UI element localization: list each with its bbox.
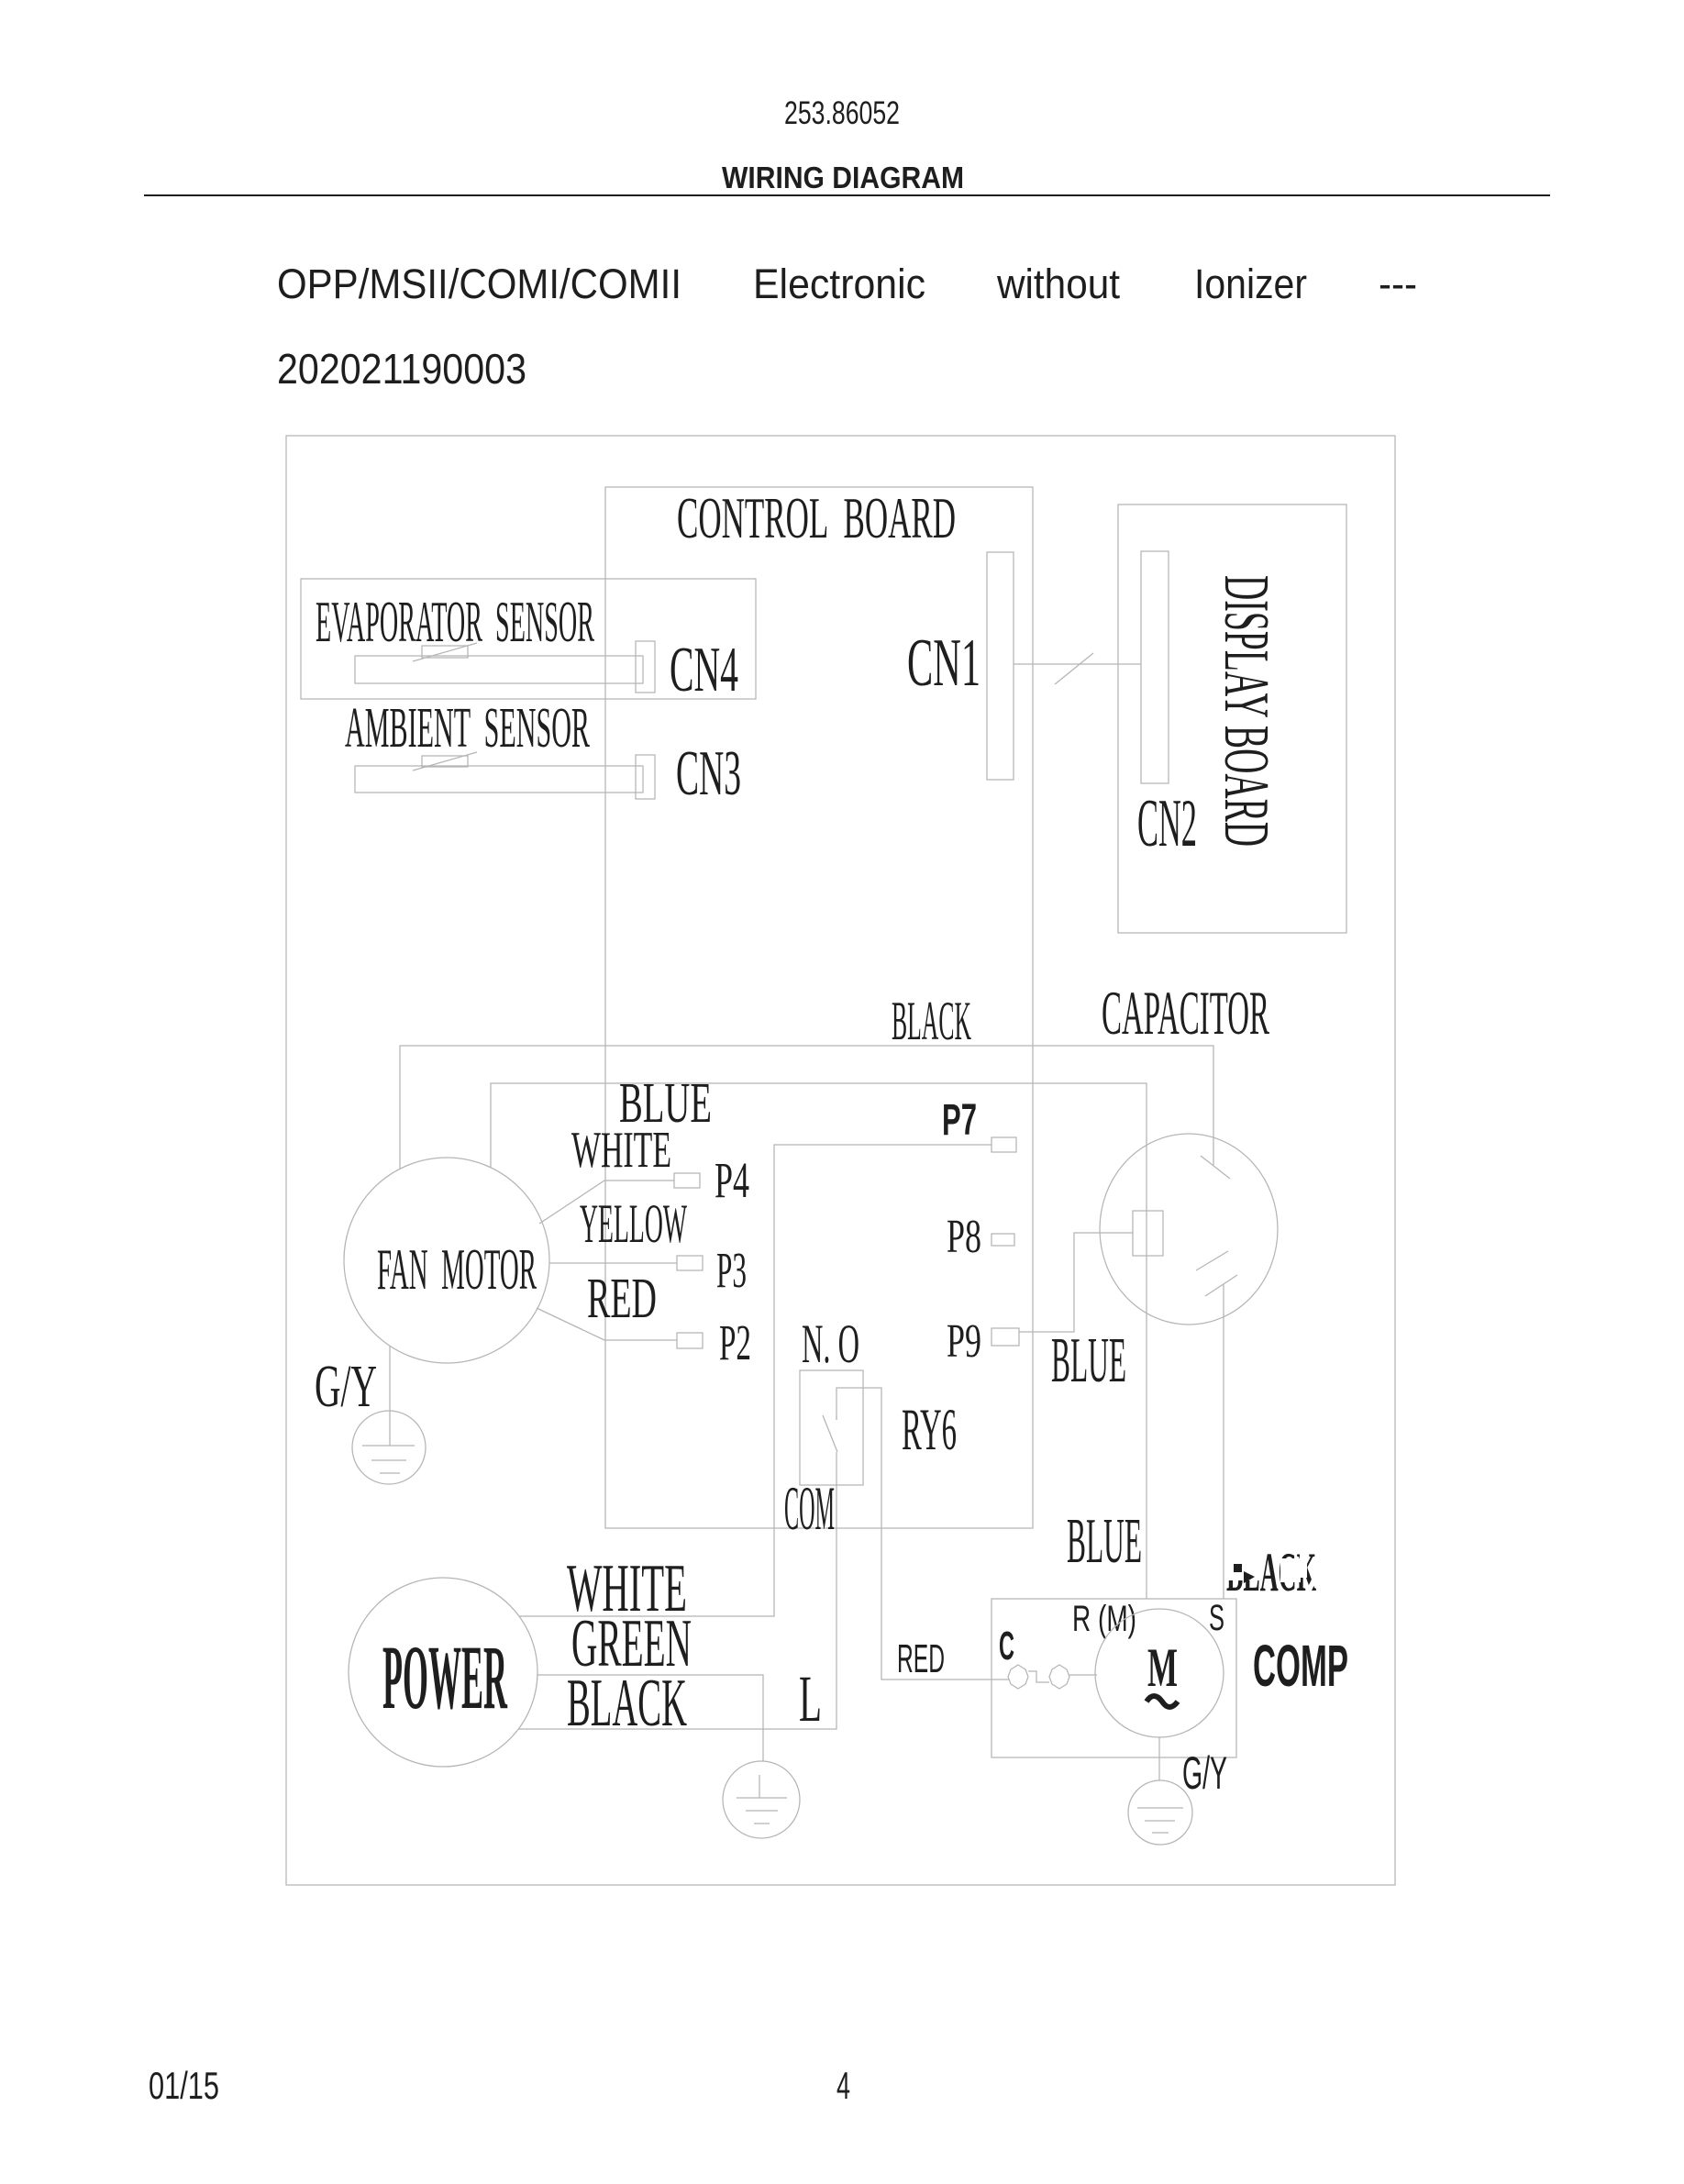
svg-text:R (M): R (M) — [1072, 1599, 1136, 1639]
svg-text:CAPACITOR: CAPACITOR — [1102, 978, 1269, 1048]
svg-text:P8: P8 — [947, 1211, 981, 1263]
svg-text:EVAPORATOR SENSOR: EVAPORATOR SENSOR — [316, 589, 594, 654]
svg-text:P7: P7 — [942, 1096, 977, 1145]
svg-text:COM: COM — [784, 1473, 835, 1543]
svg-text:POWER: POWER — [382, 1626, 508, 1728]
svg-text:Ionizer: Ionizer — [1194, 261, 1307, 307]
svg-text:L: L — [799, 1662, 822, 1735]
svg-text:G/Y: G/Y — [1182, 1747, 1227, 1799]
svg-text:BLUE: BLUE — [1067, 1506, 1142, 1577]
svg-text:N. O: N. O — [802, 1314, 859, 1374]
svg-text:C: C — [999, 1624, 1014, 1668]
svg-text:RED: RED — [897, 1636, 945, 1681]
svg-text:CN1: CN1 — [907, 626, 980, 701]
svg-text:BLACK: BLACK — [567, 1666, 687, 1741]
svg-text:FAN MOTOR: FAN MOTOR — [377, 1236, 537, 1302]
svg-text:Electronic: Electronic — [753, 261, 925, 307]
svg-text:RED: RED — [587, 1268, 657, 1330]
svg-text:without: without — [996, 261, 1120, 307]
svg-text:M: M — [1147, 1637, 1178, 1698]
svg-text:CN4: CN4 — [670, 635, 738, 705]
svg-text:BLUE: BLUE — [1051, 1325, 1126, 1396]
svg-text:YELLOW: YELLOW — [580, 1193, 687, 1254]
svg-text:---: --- — [1379, 261, 1417, 307]
svg-text:AMBIENT SENSOR: AMBIENT SENSOR — [345, 697, 590, 759]
svg-text:CN2: CN2 — [1137, 786, 1197, 861]
svg-text:G/Y: G/Y — [315, 1353, 377, 1420]
svg-text:P2: P2 — [719, 1314, 751, 1370]
svg-text:202021190003: 202021190003 — [277, 345, 526, 393]
svg-text:WIRING DIAGRAM: WIRING DIAGRAM — [722, 161, 964, 194]
svg-text:COMP: COMP — [1253, 1633, 1348, 1699]
svg-text:S: S — [1209, 1598, 1224, 1638]
svg-text:P9: P9 — [947, 1315, 981, 1368]
svg-text:P3: P3 — [716, 1242, 747, 1298]
svg-text:P4: P4 — [715, 1152, 749, 1208]
svg-text:WHITE: WHITE — [571, 1122, 671, 1179]
svg-text:253.86052: 253.86052 — [784, 95, 900, 131]
svg-text:RY6: RY6 — [902, 1397, 957, 1463]
svg-text:CN3: CN3 — [676, 738, 741, 809]
svg-text:4: 4 — [836, 2064, 850, 2107]
svg-text:OPP/MSII/COMI/COMII: OPP/MSII/COMI/COMII — [277, 261, 681, 307]
svg-text:BLACK: BLACK — [892, 991, 971, 1051]
svg-text:CONTROL BOARD: CONTROL BOARD — [677, 486, 956, 550]
svg-text:01/15: 01/15 — [149, 2064, 219, 2107]
svg-text:DISPLAY BOARD: DISPLAY BOARD — [1211, 575, 1281, 847]
